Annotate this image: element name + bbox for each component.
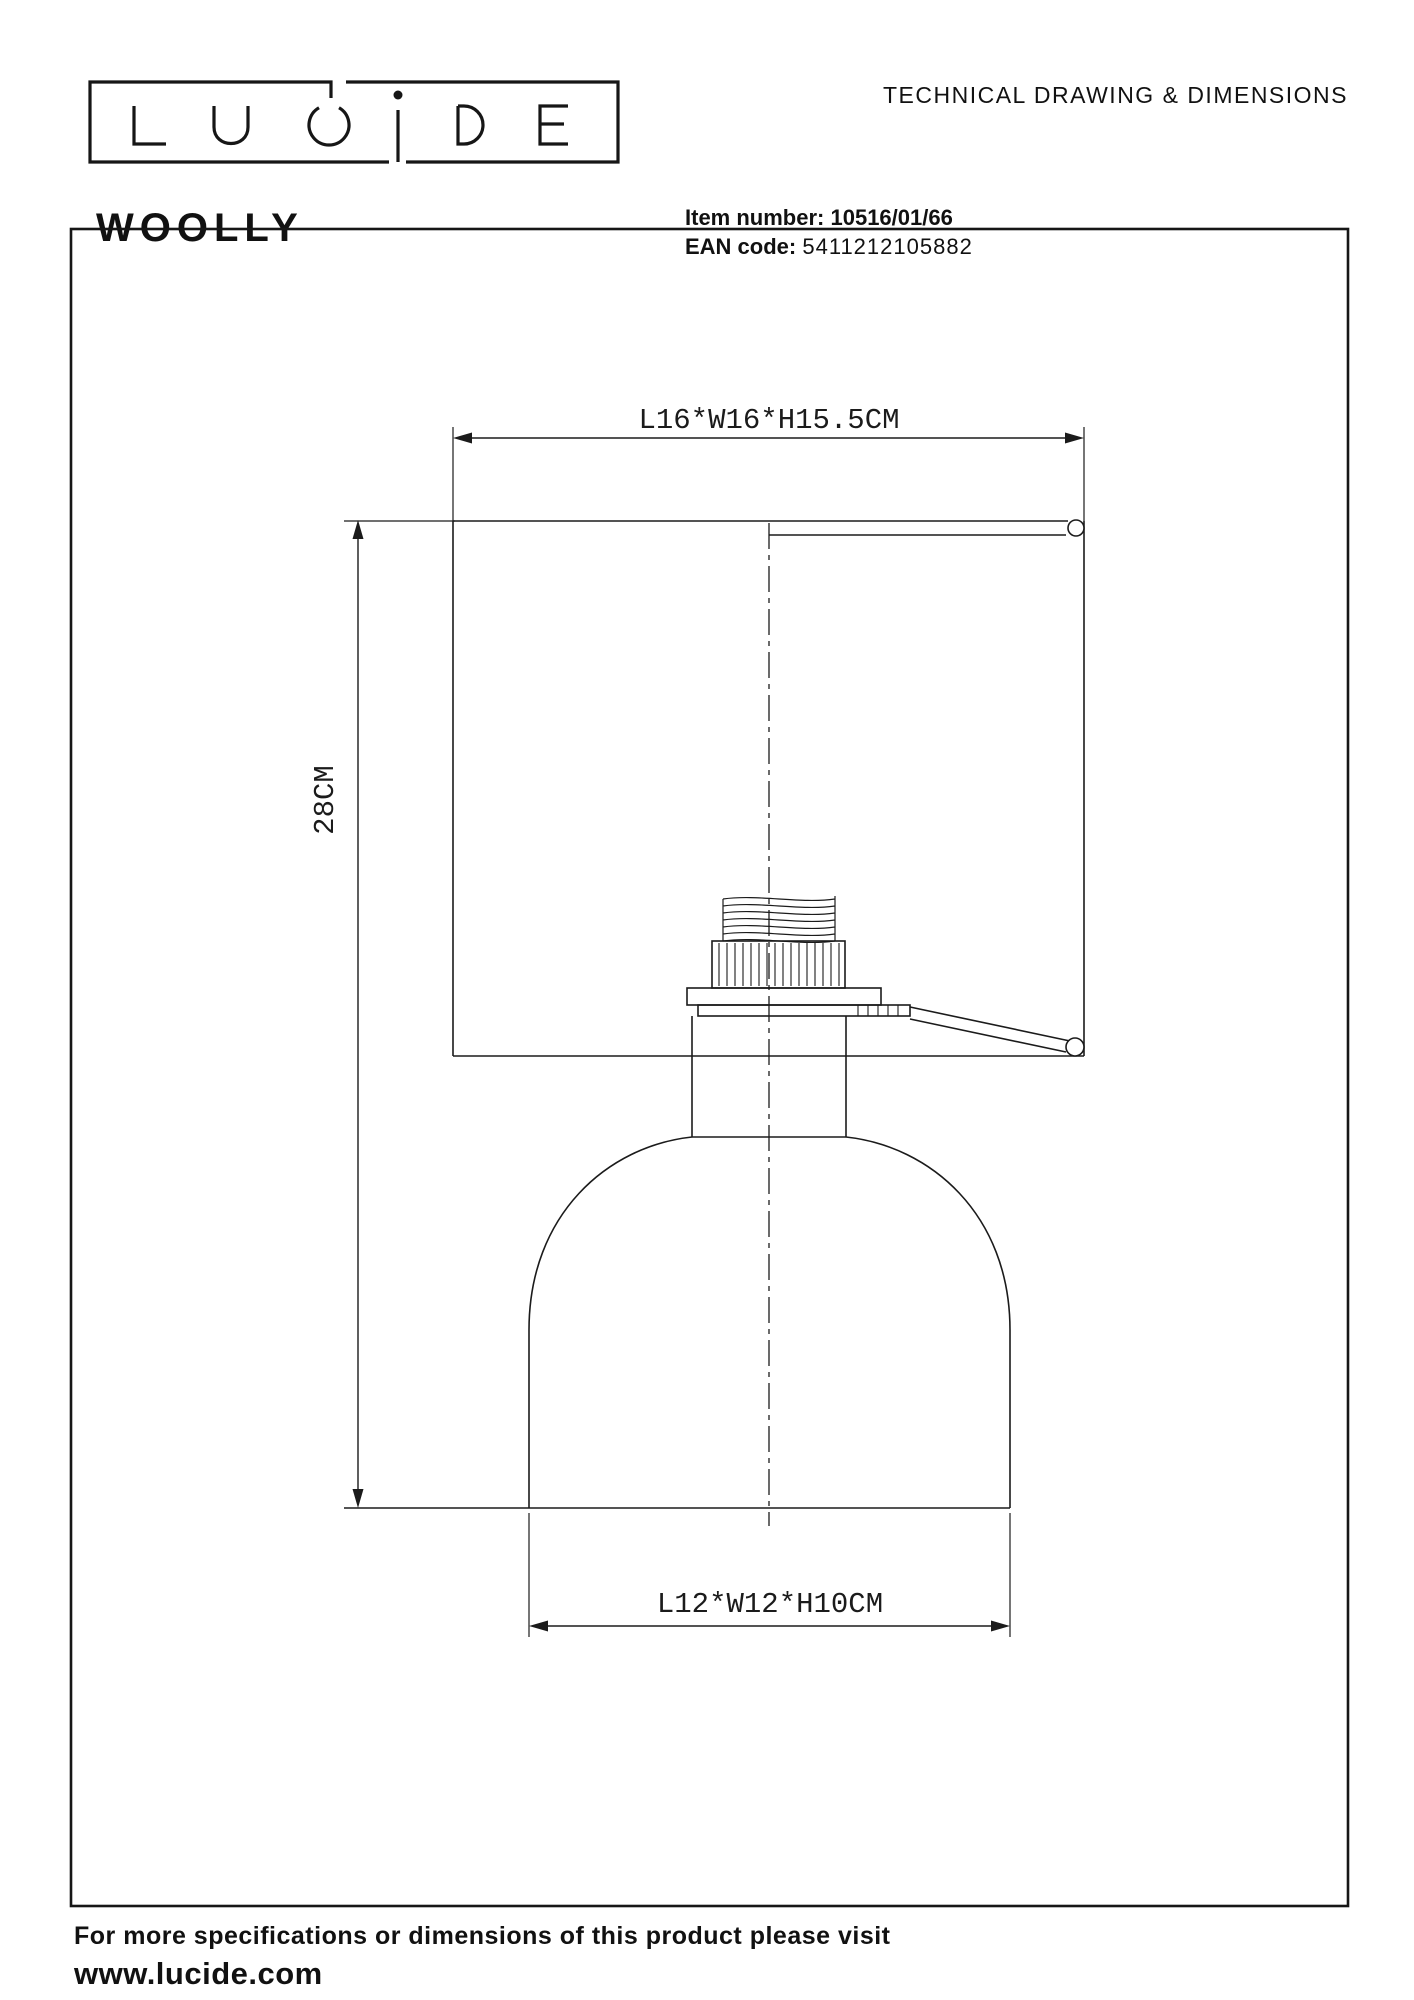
dim-base-arrow-left bbox=[529, 1621, 548, 1632]
footer-website: www.lucide.com bbox=[74, 1956, 891, 1992]
base-plate-ticks bbox=[858, 1005, 898, 1016]
dim-height-label: 28CM bbox=[309, 765, 342, 835]
socket-ring bbox=[712, 941, 845, 988]
drawing-border-frame bbox=[71, 229, 1348, 1906]
socket-flange-plate bbox=[687, 988, 881, 1005]
spec-sheet-page: LUCIDE TECHNICAL DRAWING & DIMENSIONS WO… bbox=[0, 0, 1414, 2000]
dim-base-label: L12*W12*H10CM bbox=[657, 1588, 883, 1621]
footer: For more specifications or dimensions of… bbox=[74, 1922, 891, 1992]
bracket-end-cap bbox=[1066, 1038, 1084, 1056]
socket-threads bbox=[723, 896, 835, 942]
technical-drawing: L16*W16*H15.5CM 28CM L12*W12*H10CM bbox=[0, 0, 1414, 2000]
dim-height-arrow-bottom bbox=[353, 1489, 364, 1508]
base-right-outline bbox=[846, 1137, 1010, 1508]
dim-base-arrow-right bbox=[991, 1621, 1010, 1632]
base-left-outline bbox=[529, 1137, 692, 1508]
footer-note: For more specifications or dimensions of… bbox=[74, 1922, 891, 1951]
dim-height-arrow-top bbox=[353, 520, 364, 539]
dim-shade-arrow-right bbox=[1065, 433, 1084, 444]
dim-shade-arrow-left bbox=[453, 433, 472, 444]
rod-end-cap bbox=[1068, 520, 1084, 536]
dim-shade-label: L16*W16*H15.5CM bbox=[638, 404, 899, 437]
socket-ring-knurling bbox=[719, 943, 839, 986]
